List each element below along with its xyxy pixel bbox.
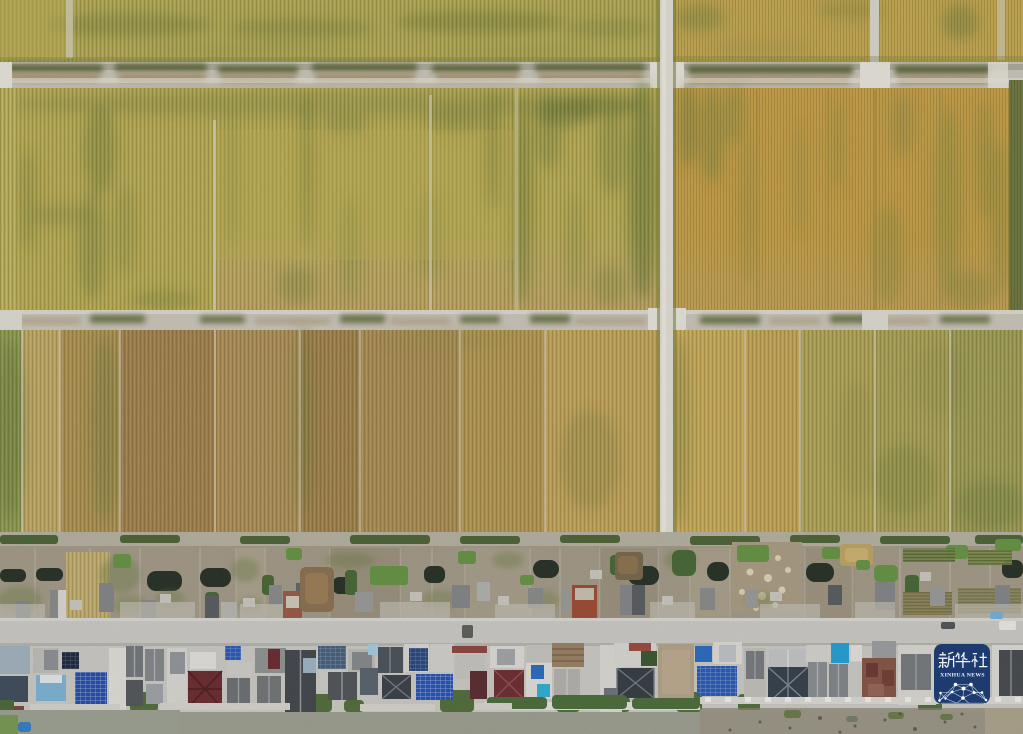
svg-text:XINHUA NEWS: XINHUA NEWS [940, 672, 985, 678]
